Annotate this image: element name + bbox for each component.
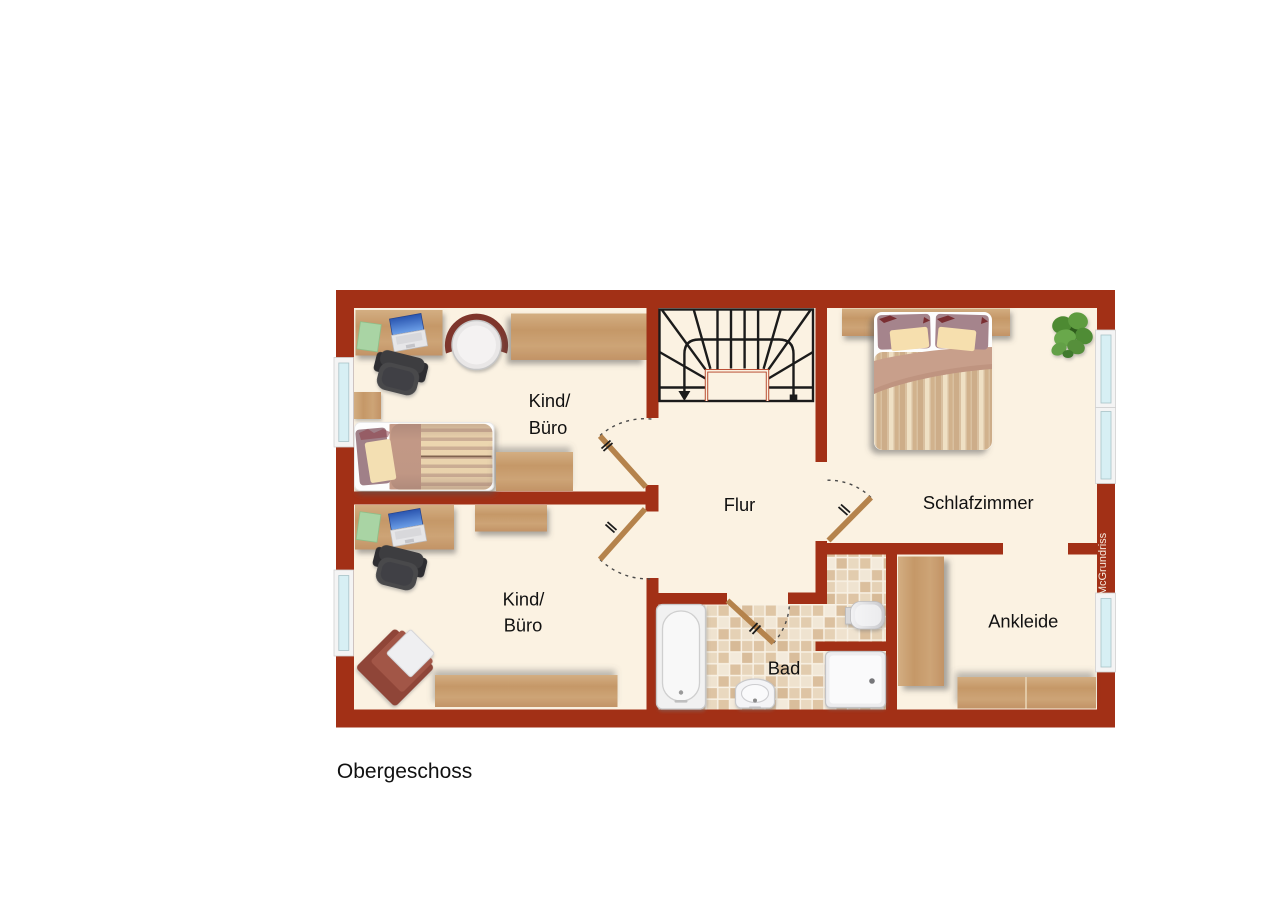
svg-text:Ankleide: Ankleide bbox=[988, 611, 1058, 632]
svg-text:Büro: Büro bbox=[504, 615, 543, 636]
svg-text:Kind/: Kind/ bbox=[529, 390, 572, 411]
svg-text:Obergeschoss: Obergeschoss bbox=[337, 760, 472, 783]
svg-text:Flur: Flur bbox=[724, 494, 755, 515]
svg-text:Schlafzimmer: Schlafzimmer bbox=[923, 492, 1034, 513]
svg-text:McGrundriss: McGrundriss bbox=[1097, 532, 1109, 595]
svg-text:Büro: Büro bbox=[529, 417, 568, 438]
svg-text:Bad: Bad bbox=[768, 658, 801, 679]
svg-text:Kind/: Kind/ bbox=[503, 589, 546, 610]
